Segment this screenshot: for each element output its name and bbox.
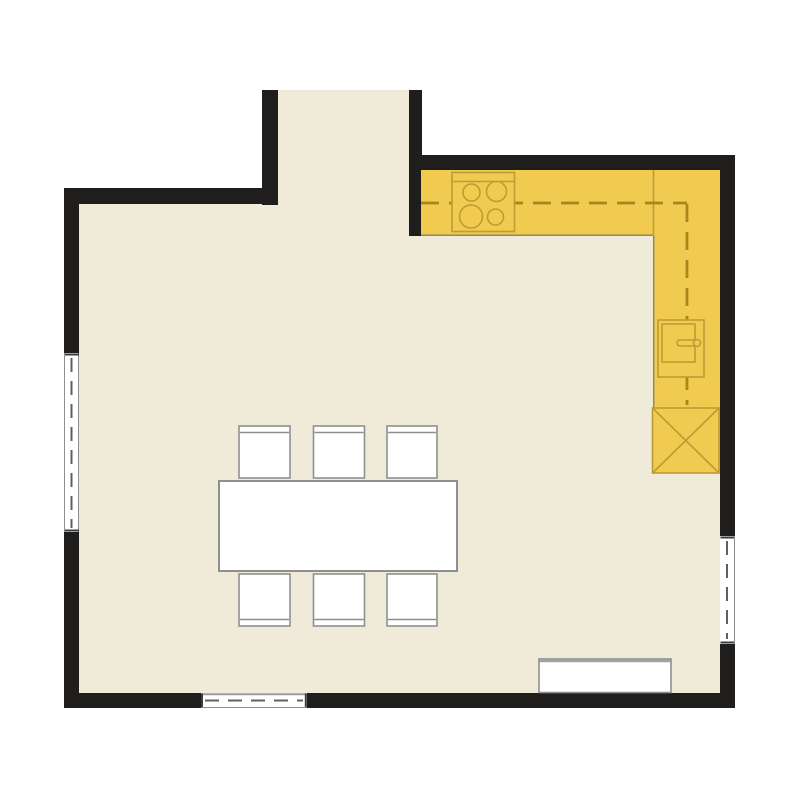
upper-left-wall (64, 188, 278, 204)
sideboard-outline (539, 659, 671, 693)
dining-chair (314, 426, 365, 478)
dining-chair (314, 574, 365, 626)
dining-chair (387, 426, 437, 478)
dining-table (219, 481, 457, 571)
dining-chair (387, 574, 437, 626)
window-right (720, 536, 735, 644)
dining-chairs-bottom (239, 574, 437, 626)
hallway-left-wall (262, 90, 278, 205)
oven-unit (658, 320, 704, 377)
oven-handle-knob (694, 340, 701, 347)
bottom-wall (64, 693, 735, 708)
hob (452, 173, 515, 232)
oven-outline (658, 320, 704, 377)
top-wall (409, 155, 735, 170)
dining-chair (239, 574, 290, 626)
dining-chairs-top (239, 426, 437, 478)
window-bottom (201, 693, 307, 708)
dining-chair (239, 426, 290, 478)
sideboard (539, 659, 671, 693)
floorplan-canvas (0, 0, 800, 800)
window-left (65, 353, 79, 532)
appliance-crossed-box (653, 408, 720, 473)
floor-plan (0, 0, 800, 800)
